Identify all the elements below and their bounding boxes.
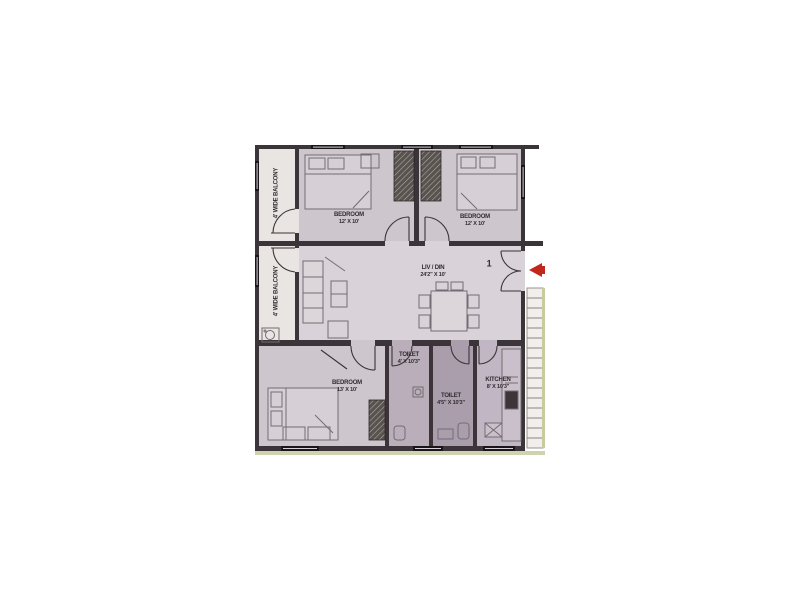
double-bed xyxy=(268,388,338,440)
kitchen-label: KITCHEN 8' X 10'3" xyxy=(485,377,510,391)
bedroom-1-label: BEDROOM 12' X 10' xyxy=(334,212,364,226)
room-dims: 12' X 10' xyxy=(335,219,363,225)
room-name: LIV / DIN xyxy=(422,265,445,271)
room-dims: 24'2" X 10' xyxy=(420,272,445,278)
room-name: KITCHEN xyxy=(485,377,510,383)
room-dims: 4'5" X 10'3" xyxy=(437,400,465,406)
wardrobe xyxy=(369,400,385,440)
room-name: TOILET xyxy=(399,352,419,358)
balcony-top-label: 4' WIDE BALCONY xyxy=(274,168,281,218)
room-dims: 13' X 10' xyxy=(333,387,361,393)
room-dims: 4' X 10'3" xyxy=(398,359,420,365)
bedroom-3-label: BEDROOM 13' X 10' xyxy=(332,380,362,394)
room-dims: 8' X 10'3" xyxy=(486,384,509,390)
living-dining-label: LIV / DIN 24'2" X 10' xyxy=(419,265,447,279)
screenshot-canvas: 4' WIDE BALCONY 4' WIDE BALCONY BEDROOM … xyxy=(0,0,800,600)
staircase xyxy=(527,288,543,448)
floor-plan: 4' WIDE BALCONY 4' WIDE BALCONY BEDROOM … xyxy=(255,145,545,455)
toilet-1-label: TOILET 4' X 10'3" xyxy=(397,352,421,366)
unit-number: 1 xyxy=(487,261,492,268)
floor-plan-drawing xyxy=(255,145,545,455)
wardrobe xyxy=(421,151,441,201)
kitchen-counter xyxy=(502,349,521,441)
balcony-bottom-label: 4' WIDE BALCONY xyxy=(274,266,281,316)
wardrobe xyxy=(394,151,414,201)
entry-arrow-icon xyxy=(529,263,545,277)
toilet-2-label: TOILET 4'5" X 10'3" xyxy=(436,393,466,407)
room-name: BEDROOM xyxy=(460,214,490,220)
room-dims: 12' X 10' xyxy=(461,221,489,227)
room-name: BEDROOM xyxy=(332,380,362,386)
room-name: BEDROOM xyxy=(334,212,364,218)
bedroom-2-label: BEDROOM 12' X 10' xyxy=(460,214,490,228)
room-name: TOILET xyxy=(441,393,461,399)
sink xyxy=(485,423,502,437)
double-bed xyxy=(457,154,517,210)
